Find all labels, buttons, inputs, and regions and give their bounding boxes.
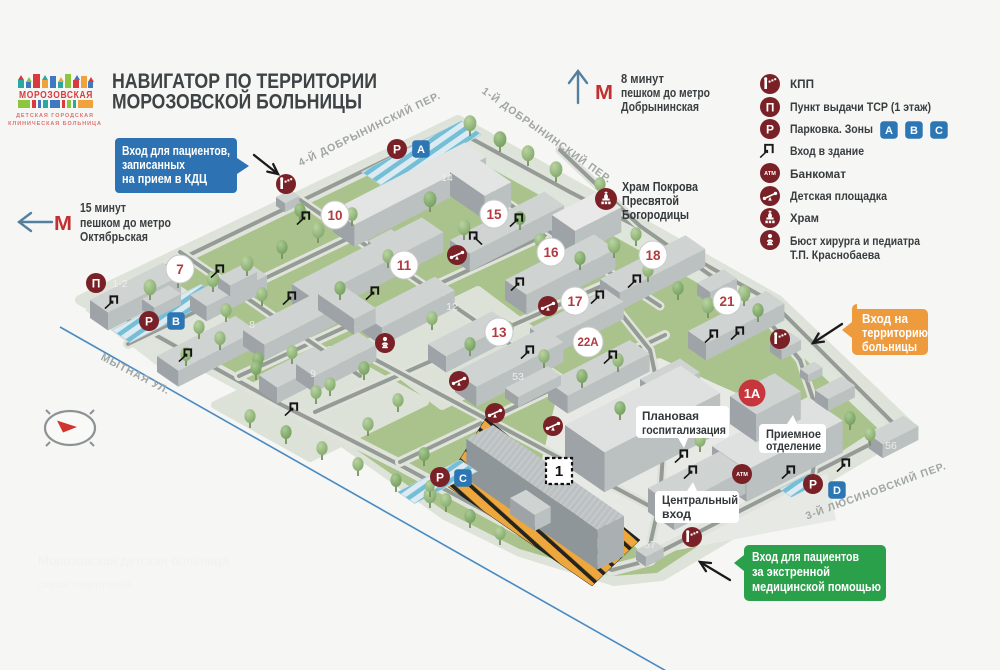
svg-text:15: 15 [486, 207, 502, 222]
svg-text:14: 14 [441, 172, 453, 184]
svg-text:D: D [833, 485, 841, 497]
svg-text:Р: Р [145, 314, 153, 328]
svg-text:12: 12 [446, 301, 458, 313]
svg-text:Храм: Храм [790, 211, 819, 225]
svg-text:Центральный: Центральный [662, 493, 738, 507]
svg-text:1-2: 1-2 [112, 278, 127, 290]
svg-text:В: В [172, 316, 180, 328]
svg-text:11: 11 [397, 258, 412, 273]
svg-text:18: 18 [645, 248, 661, 263]
svg-text:А: А [885, 125, 893, 137]
svg-text:М: М [54, 213, 72, 235]
svg-text:П: П [766, 100, 775, 114]
svg-text:пешком до метро: пешком до метро [621, 86, 710, 100]
svg-text:Т.П. Краснобаева: Т.П. Краснобаева [790, 248, 880, 262]
svg-text:Парковка. Зоны: Парковка. Зоны [790, 122, 873, 136]
svg-text:за экстренной: за экстренной [752, 565, 830, 579]
svg-text:А: А [417, 144, 425, 156]
svg-text:АТМ: АТМ [764, 171, 776, 177]
svg-text:С: С [459, 473, 467, 485]
svg-text:вход: вход [662, 507, 691, 521]
svg-text:Пункт выдачи ТСР (1 этаж): Пункт выдачи ТСР (1 этаж) [790, 100, 931, 114]
svg-text:территорию: территорию [862, 326, 928, 340]
svg-text:Морозовская детская больница: Морозовская детская больница [38, 553, 230, 568]
svg-text:КПП: КПП [790, 77, 814, 91]
svg-text:Вход для пациентов: Вход для пациентов [752, 550, 859, 564]
svg-text:7: 7 [176, 262, 184, 277]
svg-text:В: В [910, 125, 918, 137]
svg-text:ДЕТСКАЯ ГОРОДСКАЯ: ДЕТСКАЯ ГОРОДСКАЯ [16, 113, 94, 119]
svg-text:на прием в КДЦ: на прием в КДЦ [122, 172, 208, 186]
svg-text:57: 57 [644, 539, 656, 551]
svg-text:записанных: записанных [122, 158, 185, 172]
svg-text:госпитализация: госпитализация [642, 423, 726, 437]
svg-text:Плановая: Плановая [642, 409, 699, 423]
svg-text:Р: Р [809, 477, 817, 491]
svg-text:АТМ: АТМ [736, 472, 748, 478]
svg-text:Р: Р [436, 470, 444, 484]
svg-text:Бюст хирурга и педиатра: Бюст хирурга и педиатра [790, 234, 920, 248]
svg-text:КЛИНИЧЕСКАЯ БОЛЬНИЦА: КЛИНИЧЕСКАЯ БОЛЬНИЦА [8, 121, 102, 127]
svg-text:Вход в здание: Вход в здание [790, 144, 864, 158]
svg-text:17: 17 [567, 294, 582, 309]
svg-text:16: 16 [543, 245, 559, 260]
svg-text:Р: Р [766, 122, 774, 136]
svg-text:медицинской помощью: медицинской помощью [752, 580, 881, 594]
svg-text:Детская площадка: Детская площадка [790, 189, 887, 203]
svg-text:Банкомат: Банкомат [790, 167, 846, 181]
svg-text:схема территории: схема территории [38, 579, 131, 591]
svg-text:8 минут: 8 минут [621, 72, 664, 86]
svg-text:Р: Р [393, 142, 401, 156]
svg-text:отделение: отделение [766, 439, 821, 453]
svg-text:Октябрьская: Октябрьская [80, 230, 148, 244]
svg-text:22А: 22А [577, 337, 598, 349]
svg-text:П: П [92, 276, 101, 290]
svg-text:15 минут: 15 минут [80, 201, 126, 215]
svg-text:Вход для пациентов,: Вход для пациентов, [122, 144, 230, 158]
svg-text:9: 9 [310, 368, 316, 380]
svg-text:1: 1 [555, 463, 563, 480]
svg-text:Вход на: Вход на [862, 312, 909, 326]
svg-text:больницы: больницы [862, 340, 917, 354]
svg-text:МОРОЗОВСКОЙ БОЛЬНИЦЫ: МОРОЗОВСКОЙ БОЛЬНИЦЫ [112, 90, 362, 114]
svg-text:Храм Покрова: Храм Покрова [622, 180, 699, 194]
svg-text:Пресвятой: Пресвятой [622, 194, 679, 208]
svg-text:пешком до метро: пешком до метро [80, 216, 171, 230]
svg-text:56: 56 [885, 440, 897, 452]
svg-text:21: 21 [719, 294, 735, 309]
svg-text:Добрынинская: Добрынинская [621, 100, 699, 114]
svg-text:53: 53 [512, 371, 524, 383]
svg-text:8: 8 [249, 319, 255, 331]
svg-text:М: М [595, 82, 613, 104]
svg-text:Богородицы: Богородицы [622, 208, 689, 222]
svg-text:С: С [935, 125, 943, 137]
svg-text:13: 13 [491, 325, 507, 340]
svg-text:МОРОЗОВСКАЯ: МОРОЗОВСКАЯ [19, 89, 93, 101]
svg-text:1А: 1А [744, 386, 761, 401]
svg-text:10: 10 [327, 208, 342, 223]
